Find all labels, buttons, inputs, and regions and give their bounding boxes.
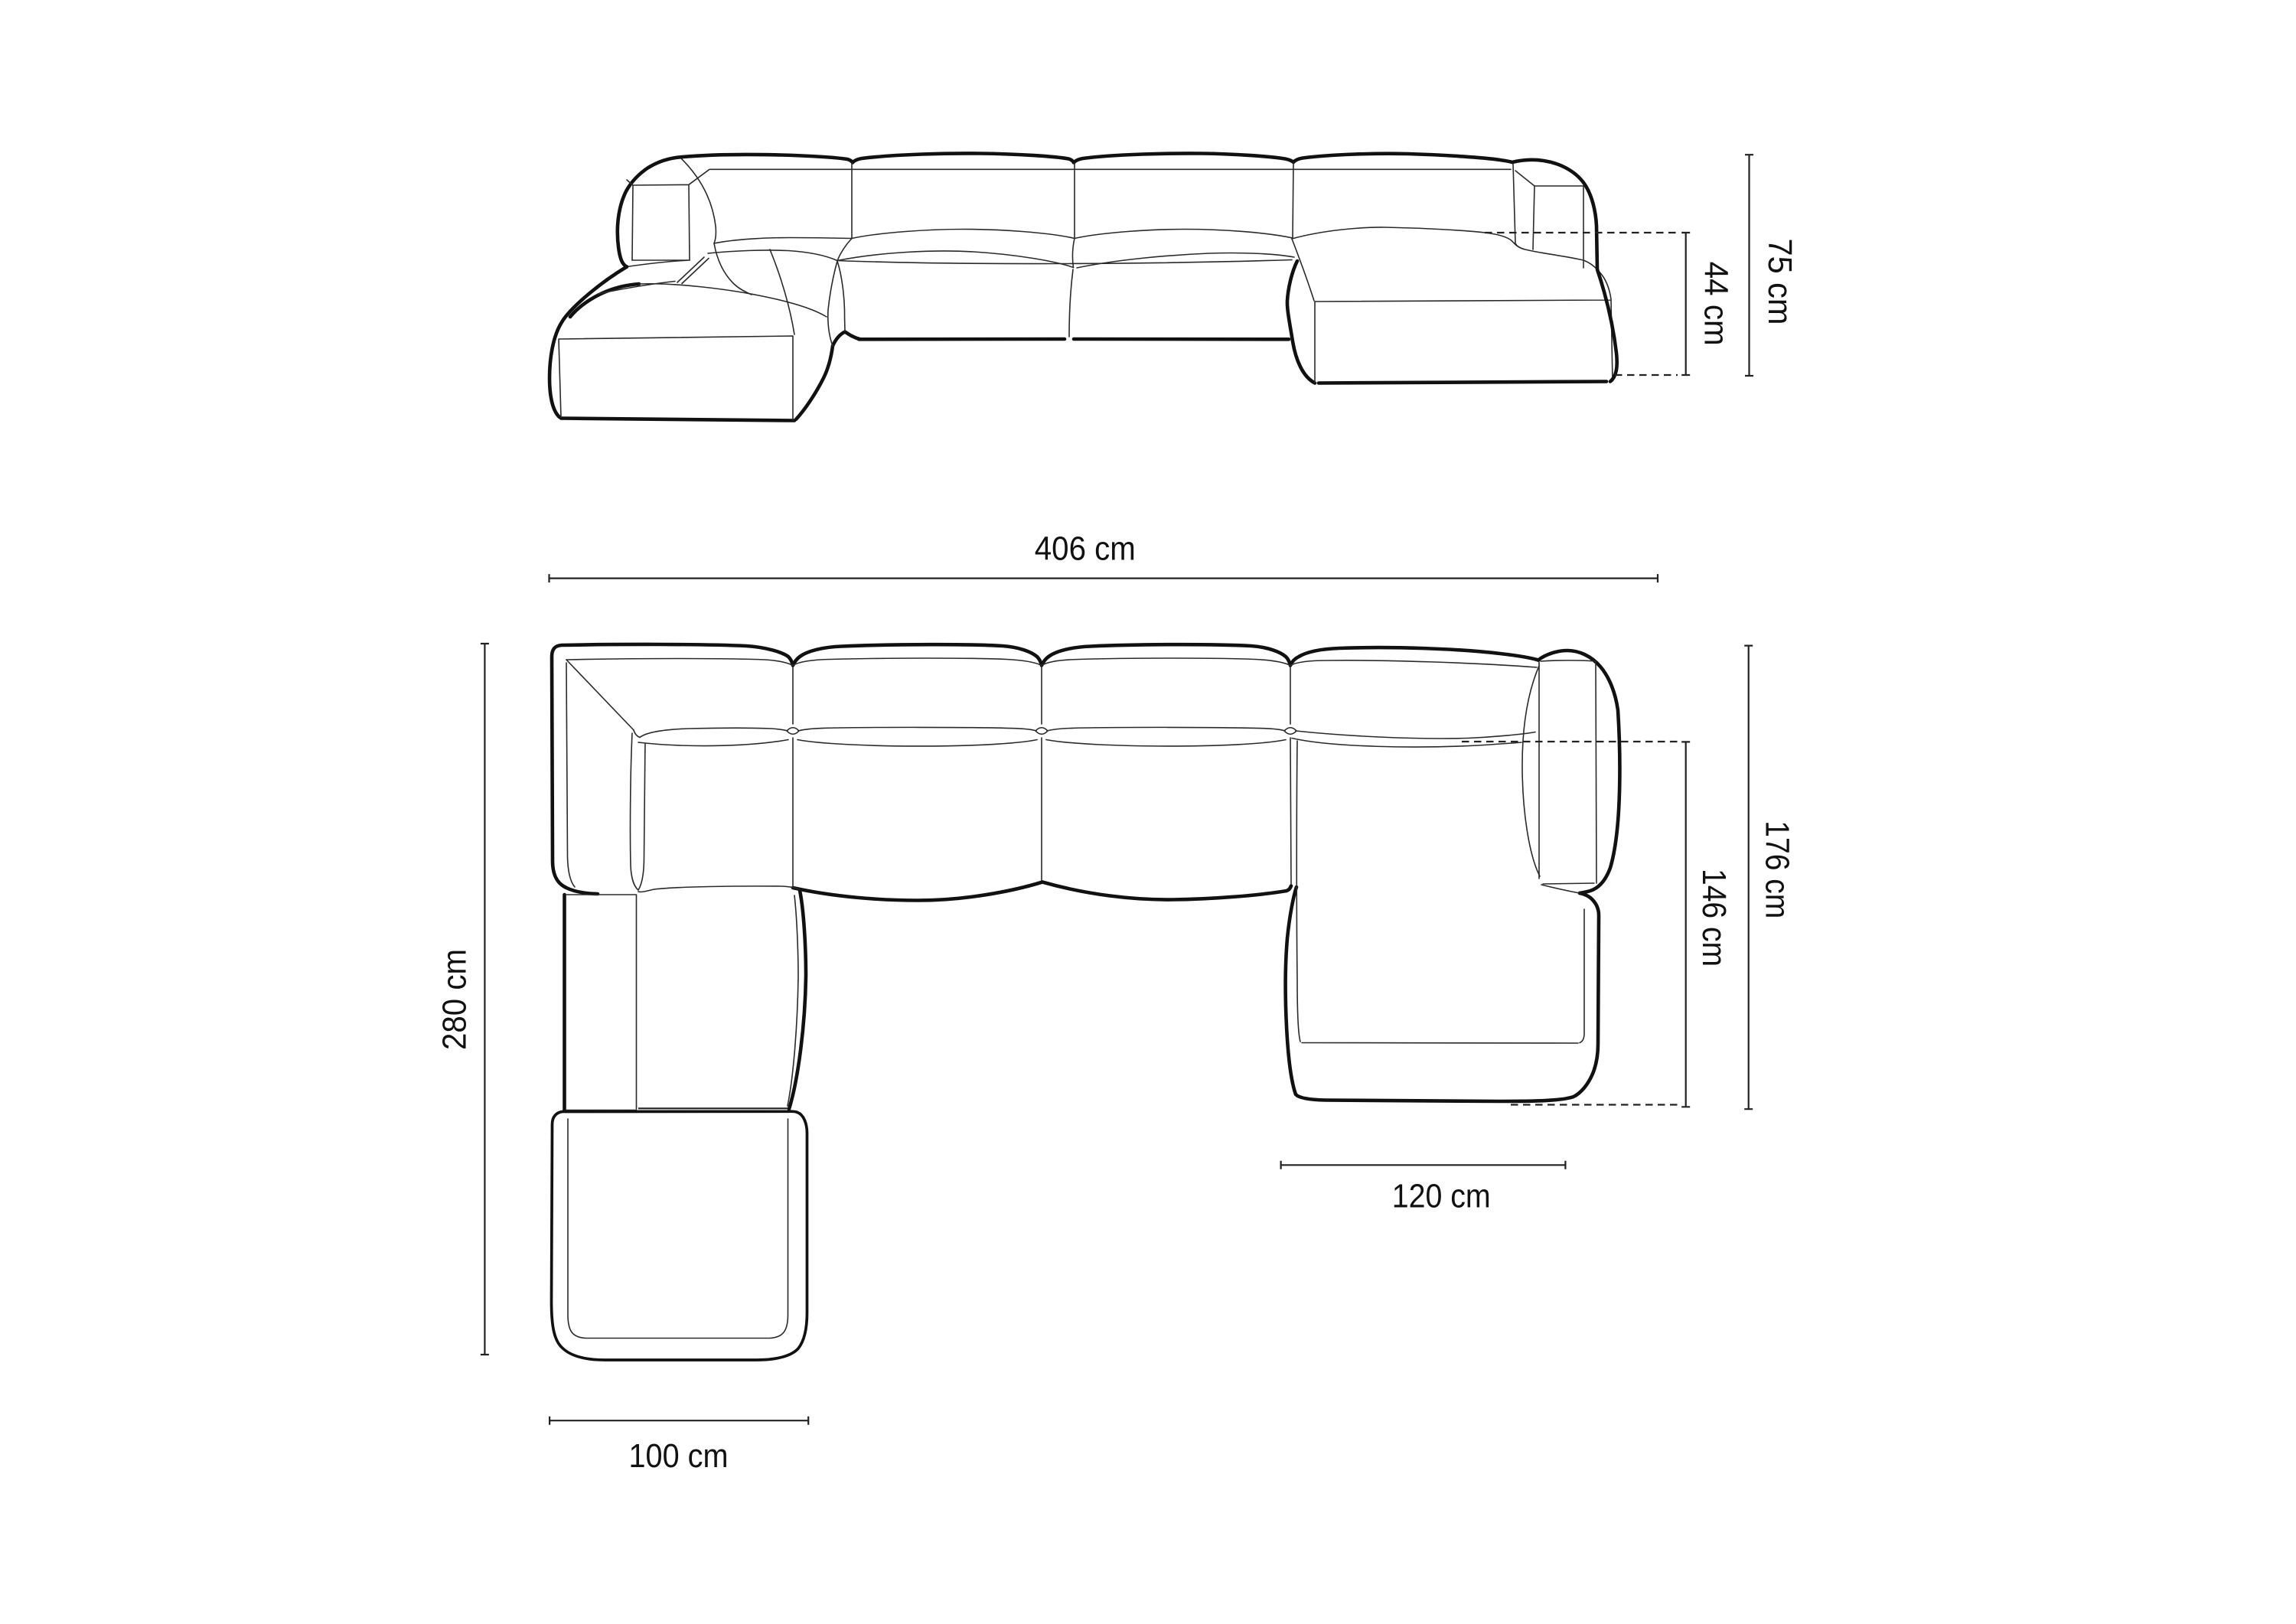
svg-text:176 cm: 176 cm bbox=[1758, 820, 1795, 918]
svg-text:280 cm: 280 cm bbox=[436, 949, 474, 1050]
svg-text:100 cm: 100 cm bbox=[629, 1437, 729, 1475]
svg-text:44 cm: 44 cm bbox=[1697, 262, 1734, 346]
svg-text:406 cm: 406 cm bbox=[1035, 530, 1136, 568]
svg-text:146 cm: 146 cm bbox=[1695, 869, 1733, 967]
svg-text:75 cm: 75 cm bbox=[1761, 239, 1799, 325]
svg-text:120 cm: 120 cm bbox=[1392, 1178, 1491, 1215]
